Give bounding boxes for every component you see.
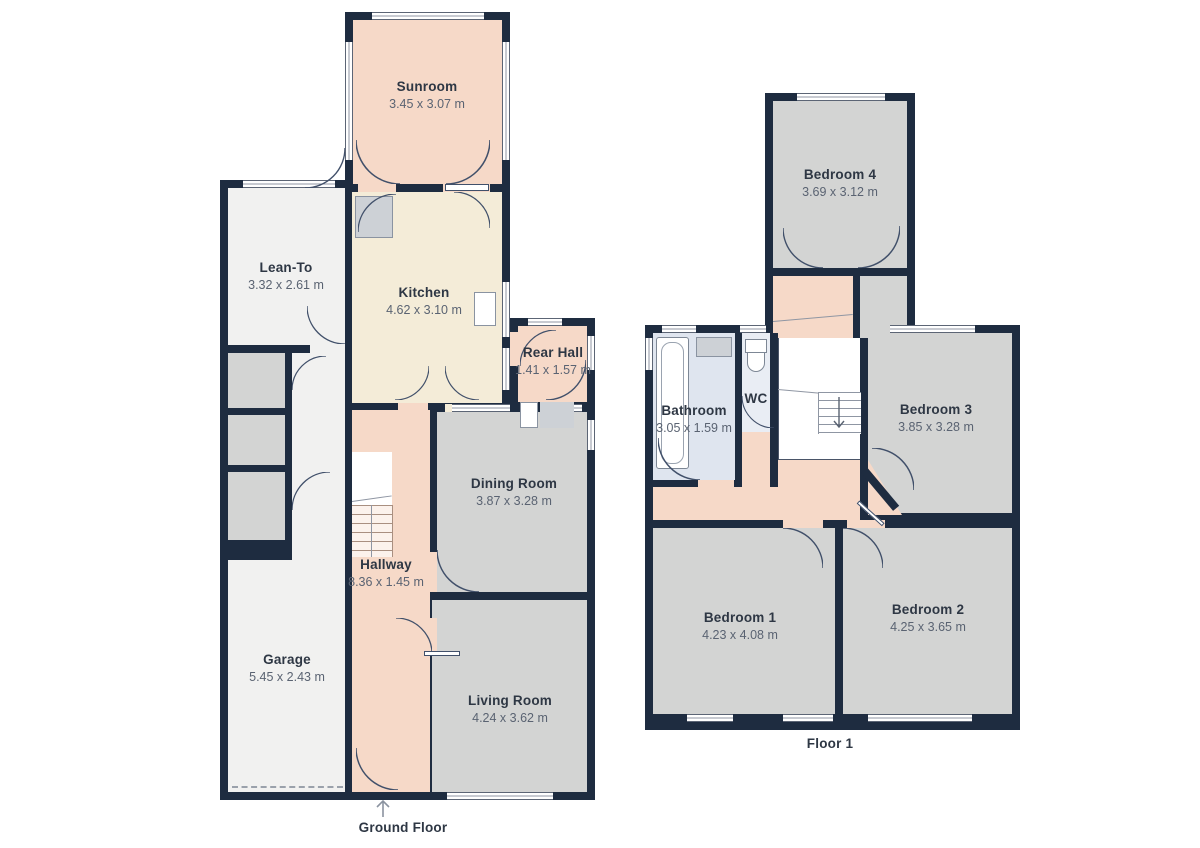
window bbox=[868, 714, 972, 722]
room-label-kitchen: Kitchen 4.62 x 3.10 m bbox=[386, 284, 462, 318]
room-label-living: Living Room 4.24 x 3.62 m bbox=[468, 692, 552, 726]
toilet-bowl-icon bbox=[747, 352, 765, 372]
window bbox=[797, 93, 885, 101]
window bbox=[783, 714, 833, 722]
window bbox=[452, 404, 510, 412]
room-label-sunroom: Sunroom 3.45 x 3.07 m bbox=[389, 78, 465, 112]
room-name: Bedroom 3 bbox=[898, 401, 974, 419]
door-arc bbox=[658, 438, 700, 480]
door-gap bbox=[430, 552, 437, 592]
door-arc bbox=[292, 472, 330, 510]
store-cell-1 bbox=[228, 353, 285, 408]
room-name: WC bbox=[745, 390, 768, 408]
door-arc bbox=[858, 226, 900, 268]
door-arc bbox=[292, 356, 326, 390]
window bbox=[372, 12, 484, 20]
upper-landing bbox=[773, 276, 853, 338]
room-name: Sunroom bbox=[389, 78, 465, 96]
door-gap bbox=[398, 403, 428, 410]
window bbox=[662, 325, 696, 333]
room-dims: 4.23 x 4.08 m bbox=[702, 627, 778, 643]
floor-caption-1: Floor 1 bbox=[807, 736, 853, 751]
window bbox=[890, 325, 975, 333]
window bbox=[645, 338, 653, 370]
wall bbox=[220, 345, 310, 353]
room-dims: 3.87 x 3.28 m bbox=[471, 493, 557, 509]
room-label-lean-to: Lean-To 3.32 x 2.61 m bbox=[248, 259, 324, 293]
room-label-garage: Garage 5.45 x 2.43 m bbox=[249, 651, 325, 685]
room-dims: 8.36 x 1.45 m bbox=[348, 574, 424, 590]
door-arc bbox=[396, 618, 432, 654]
room-name: Kitchen bbox=[386, 284, 462, 302]
room-dims: 5.45 x 2.43 m bbox=[249, 669, 325, 685]
room-label-bedroom1: Bedroom 1 4.23 x 4.08 m bbox=[702, 609, 778, 643]
window bbox=[502, 282, 510, 337]
door-arc bbox=[454, 192, 490, 228]
room-label-bedroom4: Bedroom 4 3.69 x 3.12 m bbox=[802, 166, 878, 200]
sink-icon bbox=[474, 292, 496, 326]
garage-door-line bbox=[232, 786, 343, 788]
door-arc bbox=[445, 366, 479, 400]
door-arc bbox=[783, 228, 823, 268]
stairs-line bbox=[371, 505, 372, 557]
door-arc bbox=[843, 528, 883, 568]
store-cell-3 bbox=[228, 472, 285, 540]
room-name: Hallway bbox=[348, 556, 424, 574]
room-name: Bedroom 4 bbox=[802, 166, 878, 184]
room-dims: 3.05 x 1.59 m bbox=[656, 420, 732, 436]
window bbox=[447, 792, 553, 800]
window bbox=[587, 420, 595, 450]
window bbox=[502, 348, 510, 390]
room-name: Rear Hall bbox=[515, 344, 591, 362]
room-name: Bathroom bbox=[656, 402, 732, 420]
room-name: Bedroom 2 bbox=[890, 601, 966, 619]
door-arc bbox=[307, 306, 345, 344]
room-name: Dining Room bbox=[471, 475, 557, 493]
room-label-hallway: Hallway 8.36 x 1.45 m bbox=[348, 556, 424, 590]
door-arc bbox=[437, 550, 479, 592]
landing bbox=[742, 432, 770, 487]
floor-plan: Sunroom 3.45 x 3.07 m Lean-To 3.32 x 2.6… bbox=[0, 0, 1200, 848]
porch-door bbox=[520, 402, 538, 428]
window bbox=[345, 42, 353, 160]
stairs-down-arrow-icon bbox=[832, 396, 846, 430]
room-label-bathroom: Bathroom 3.05 x 1.59 m bbox=[656, 402, 732, 436]
door-arc bbox=[446, 140, 490, 184]
room-label-dining: Dining Room 3.87 x 3.28 m bbox=[471, 475, 557, 509]
basin-icon bbox=[696, 337, 732, 357]
landing bbox=[653, 487, 860, 520]
room-dims: 4.62 x 3.10 m bbox=[386, 302, 462, 318]
store-cell-2 bbox=[228, 415, 285, 465]
room-label-bedroom2: Bedroom 2 4.25 x 3.65 m bbox=[890, 601, 966, 635]
stairs bbox=[352, 505, 393, 557]
room-dims: 4.25 x 3.65 m bbox=[890, 619, 966, 635]
room-name: Lean-To bbox=[248, 259, 324, 277]
room-dims: 3.69 x 3.12 m bbox=[802, 184, 878, 200]
room-name: Living Room bbox=[468, 692, 552, 710]
room-label-bedroom3: Bedroom 3 3.85 x 3.28 m bbox=[898, 401, 974, 435]
room-dims: 4.24 x 3.62 m bbox=[468, 710, 552, 726]
room-name: Garage bbox=[249, 651, 325, 669]
room-label-rear-hall: Rear Hall 1.41 x 1.57 m bbox=[515, 344, 591, 378]
door-arc bbox=[783, 528, 823, 568]
door-arc bbox=[305, 148, 345, 188]
door-arc bbox=[358, 194, 396, 232]
room-dims: 3.32 x 2.61 m bbox=[248, 277, 324, 293]
floor-caption-ground: Ground Floor bbox=[359, 820, 448, 835]
door-arc bbox=[872, 448, 914, 490]
door-gap bbox=[358, 184, 396, 192]
window bbox=[528, 318, 562, 326]
toilet-icon bbox=[745, 339, 767, 353]
door-arc bbox=[356, 140, 400, 184]
window bbox=[502, 42, 510, 160]
room-dims: 3.85 x 3.28 m bbox=[898, 419, 974, 435]
window bbox=[740, 325, 766, 333]
room-dims: 3.45 x 3.07 m bbox=[389, 96, 465, 112]
room-label-wc: WC bbox=[745, 390, 768, 408]
door-leaf bbox=[424, 651, 460, 656]
door-arc bbox=[356, 748, 398, 790]
window bbox=[687, 714, 733, 722]
room-name: Bedroom 1 bbox=[702, 609, 778, 627]
door-gap bbox=[698, 480, 734, 487]
room-dims: 1.41 x 1.57 m bbox=[515, 362, 591, 378]
door-leaf bbox=[445, 184, 489, 191]
porch-step bbox=[540, 402, 574, 428]
landing bbox=[778, 460, 860, 487]
door-arc bbox=[395, 366, 429, 400]
entrance-arrow-icon bbox=[374, 798, 392, 818]
door-gap bbox=[783, 520, 823, 528]
